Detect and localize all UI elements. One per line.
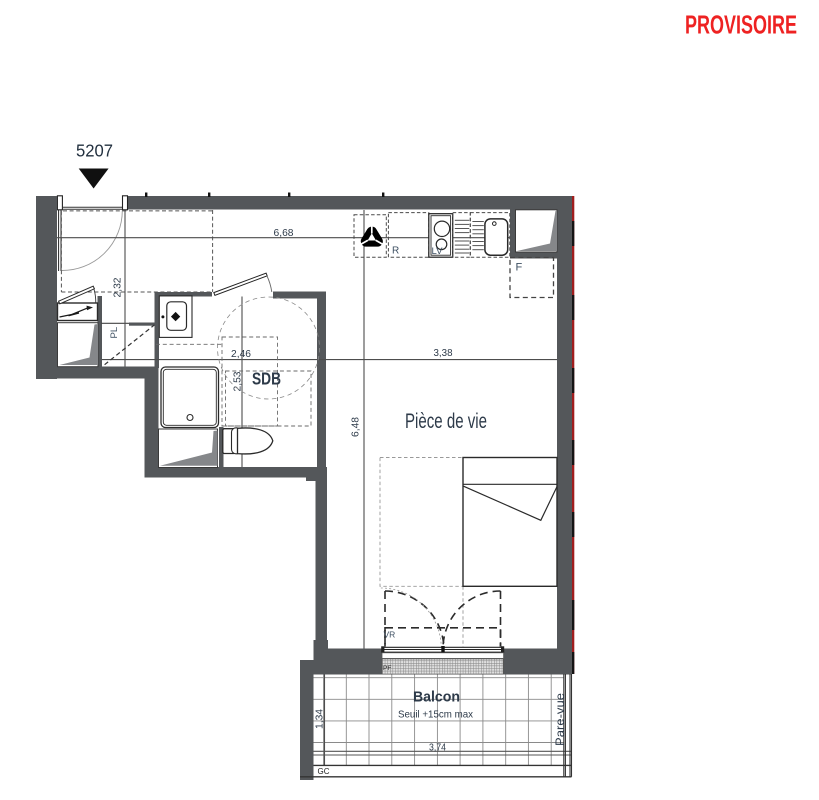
svg-text:3,38: 3,38 [434, 347, 453, 359]
svg-text:5207: 5207 [76, 141, 113, 161]
svg-text:PL: PL [109, 327, 120, 339]
svg-text:6,48: 6,48 [350, 417, 362, 437]
svg-text:6,68: 6,68 [274, 227, 294, 239]
svg-text:2,32: 2,32 [112, 277, 124, 297]
svg-text:1,34: 1,34 [314, 709, 326, 729]
svg-text:LV: LV [432, 246, 444, 257]
svg-text:SDB: SDB [252, 369, 281, 389]
svg-text:F: F [516, 262, 523, 274]
svg-text:PF: PF [383, 665, 391, 672]
svg-text:Pare-vue: Pare-vue [555, 693, 567, 746]
svg-text:PROVISOIRE: PROVISOIRE [685, 12, 797, 40]
svg-text:R: R [392, 246, 399, 257]
svg-text:GC: GC [318, 767, 330, 776]
svg-text:3,74: 3,74 [429, 742, 446, 754]
svg-text:VR: VR [384, 630, 396, 640]
svg-text:Pièce de vie: Pièce de vie [405, 410, 487, 433]
svg-text:2,46: 2,46 [231, 348, 251, 360]
svg-text:Balcon: Balcon [413, 689, 460, 706]
svg-text:Seuil +15cm max: Seuil +15cm max [398, 709, 474, 721]
